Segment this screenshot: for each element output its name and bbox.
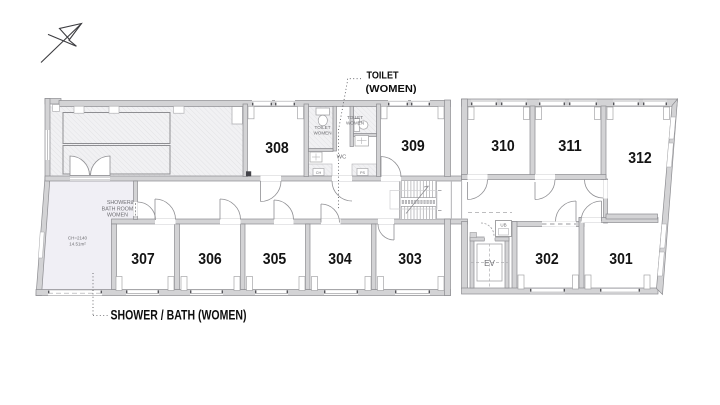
- svg-text:310: 310: [491, 138, 515, 155]
- svg-text:TOILET: TOILET: [315, 125, 331, 130]
- svg-text:EV: EV: [484, 259, 495, 268]
- svg-text:BATH ROOM: BATH ROOM: [102, 206, 134, 212]
- svg-text:WOMEN: WOMEN: [313, 131, 331, 136]
- svg-text:TOILET: TOILET: [347, 115, 363, 120]
- svg-text:(WOMEN): (WOMEN): [366, 83, 417, 95]
- svg-text:308: 308: [265, 140, 289, 157]
- svg-text:14.51m²: 14.51m²: [69, 242, 86, 247]
- svg-text:311: 311: [558, 138, 582, 155]
- svg-text:306: 306: [198, 251, 222, 268]
- svg-text:TOILET: TOILET: [367, 70, 400, 82]
- svg-text:307: 307: [131, 251, 155, 268]
- svg-text:WOMEN: WOMEN: [107, 213, 128, 219]
- svg-text:303: 303: [398, 251, 422, 268]
- svg-text:UB: UB: [500, 223, 506, 228]
- svg-text:305: 305: [263, 251, 287, 268]
- svg-text:304: 304: [328, 251, 352, 268]
- svg-text:SHOWER&: SHOWER&: [107, 200, 135, 206]
- svg-text:301: 301: [609, 251, 633, 268]
- svg-text:WOMEN: WOMEN: [346, 121, 364, 126]
- svg-text:CH: CH: [316, 171, 322, 175]
- svg-text:PS: PS: [360, 171, 366, 175]
- svg-text:CH=2140: CH=2140: [68, 236, 88, 241]
- svg-text:312: 312: [628, 150, 652, 167]
- svg-text:309: 309: [401, 138, 425, 155]
- svg-text:SHOWER / BATH (WOMEN): SHOWER / BATH (WOMEN): [111, 307, 247, 323]
- svg-text:302: 302: [535, 251, 559, 268]
